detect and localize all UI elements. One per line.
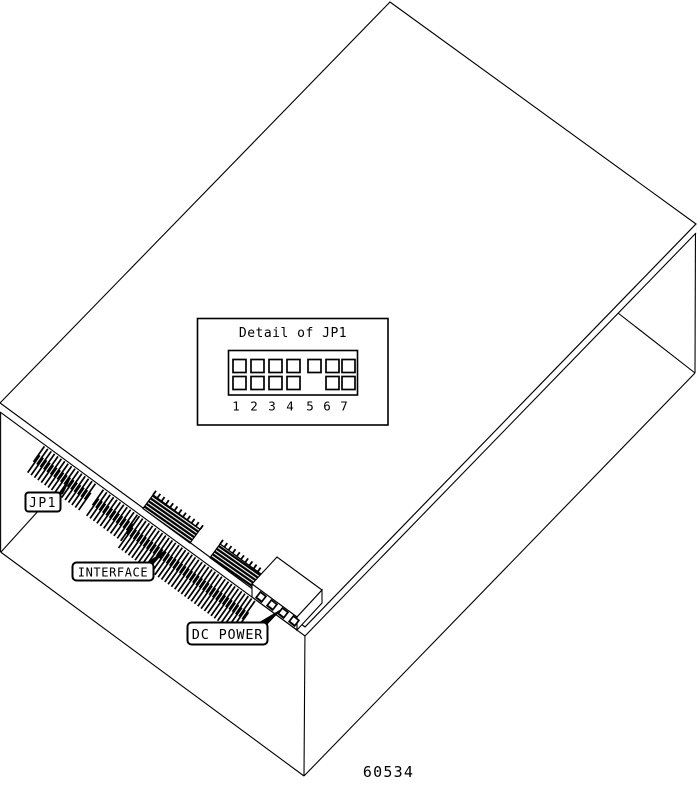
jumper-pin-number: 5 — [306, 399, 314, 414]
jumper-pin-number: 3 — [268, 399, 276, 414]
jumper-pin-square — [251, 377, 264, 390]
jumper-pin-square — [269, 360, 282, 373]
jumper-pin-number: 2 — [250, 399, 258, 414]
jumper-pin-square — [342, 360, 355, 373]
hard-drive-isometric-diagram: Detail of JP1 1234567 JP1 INTERFACE DC P… — [0, 0, 697, 786]
jumper-pin-square — [326, 377, 339, 390]
drive-front-vertical-edge — [304, 627, 305, 776]
jumper-pin-square — [251, 360, 264, 373]
jumper-pin-square — [287, 377, 300, 390]
jumper-pin-number: 7 — [340, 399, 348, 414]
interface-label-text: INTERFACE — [78, 566, 148, 580]
jumper-pin-square — [287, 360, 300, 373]
jumper-pin-number: 4 — [286, 399, 294, 414]
jumper-pin-number: 6 — [323, 399, 331, 414]
jumper-pin-square — [308, 360, 321, 373]
drive-top-face — [0, 2, 696, 627]
drive-right-vertical-edge — [695, 224, 696, 373]
inset-title: Detail of JP1 — [239, 326, 347, 341]
jumper-pin-numbers: 1234567 — [232, 399, 348, 414]
diagram-page: Detail of JP1 1234567 JP1 INTERFACE DC P… — [0, 0, 697, 786]
drive-inner-right-edge — [618, 313, 695, 373]
jumper-pin-square — [326, 360, 339, 373]
jumper-pin-square — [342, 377, 355, 390]
figure-number: 60534 — [363, 763, 414, 781]
dc-power-label-text: DC POWER — [192, 627, 263, 643]
jp1-leader-line — [1, 509, 40, 552]
jumper-pin-square — [269, 377, 282, 390]
jumper-pin-number: 1 — [232, 399, 240, 414]
jumper-pin-square — [233, 360, 246, 373]
jumper-pin-square — [233, 377, 246, 390]
jp1-label-text: JP1 — [29, 496, 57, 511]
jp1-detail-inset: Detail of JP1 1234567 — [198, 319, 389, 426]
